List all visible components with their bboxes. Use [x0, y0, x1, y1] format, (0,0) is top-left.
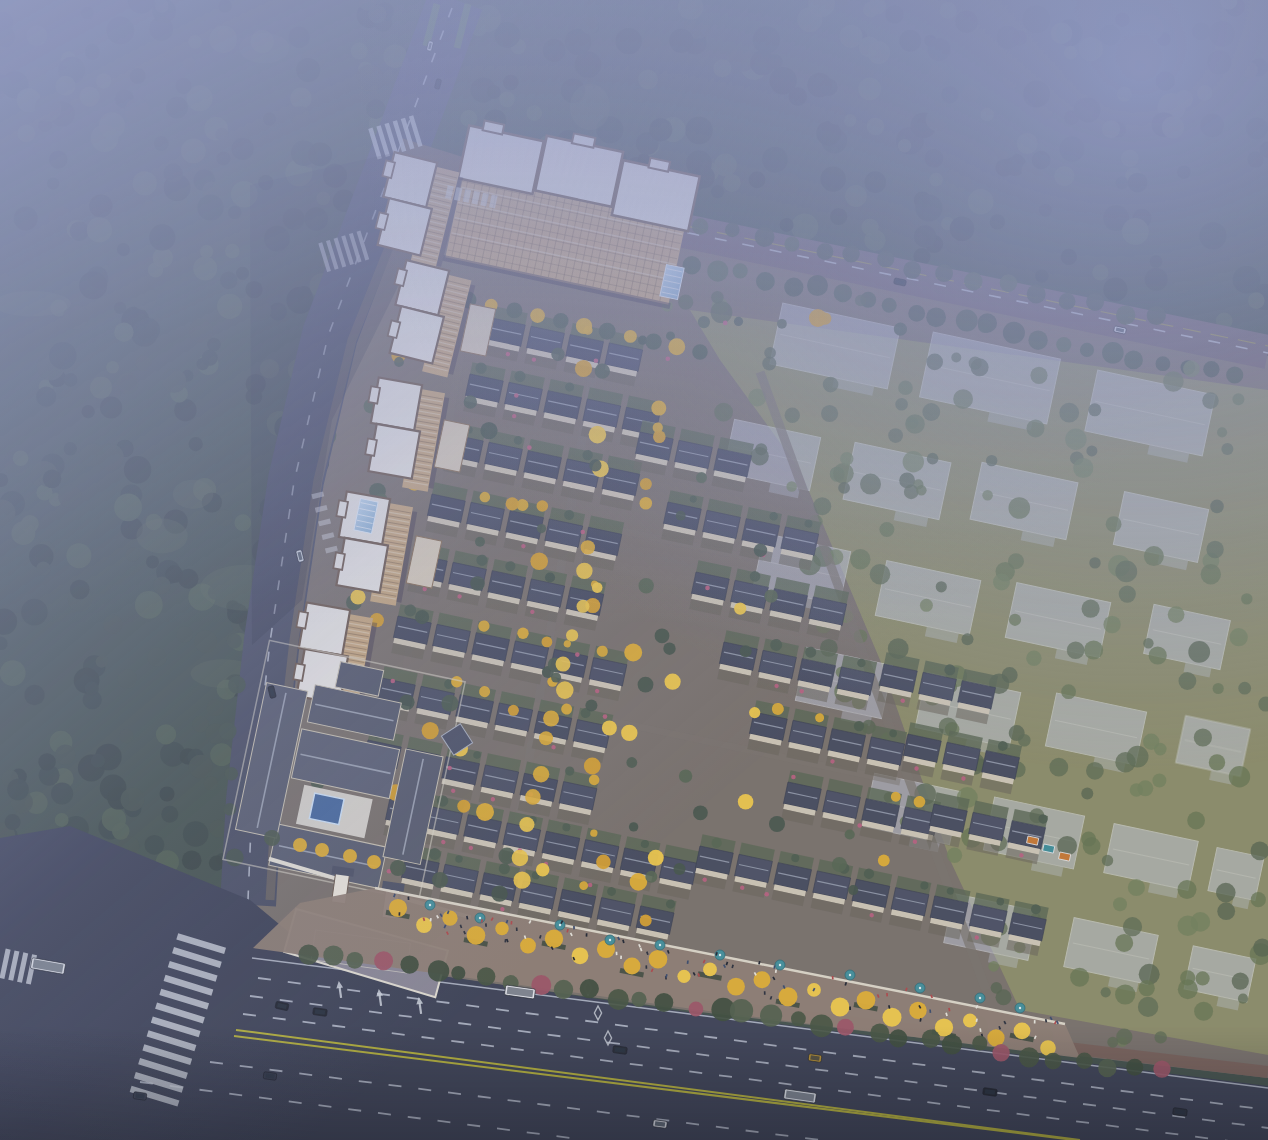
masterplan-aerial-view [0, 0, 1268, 1140]
bottom-vignette [0, 0, 1268, 1140]
aerial-rendering-stage [0, 0, 1268, 1140]
